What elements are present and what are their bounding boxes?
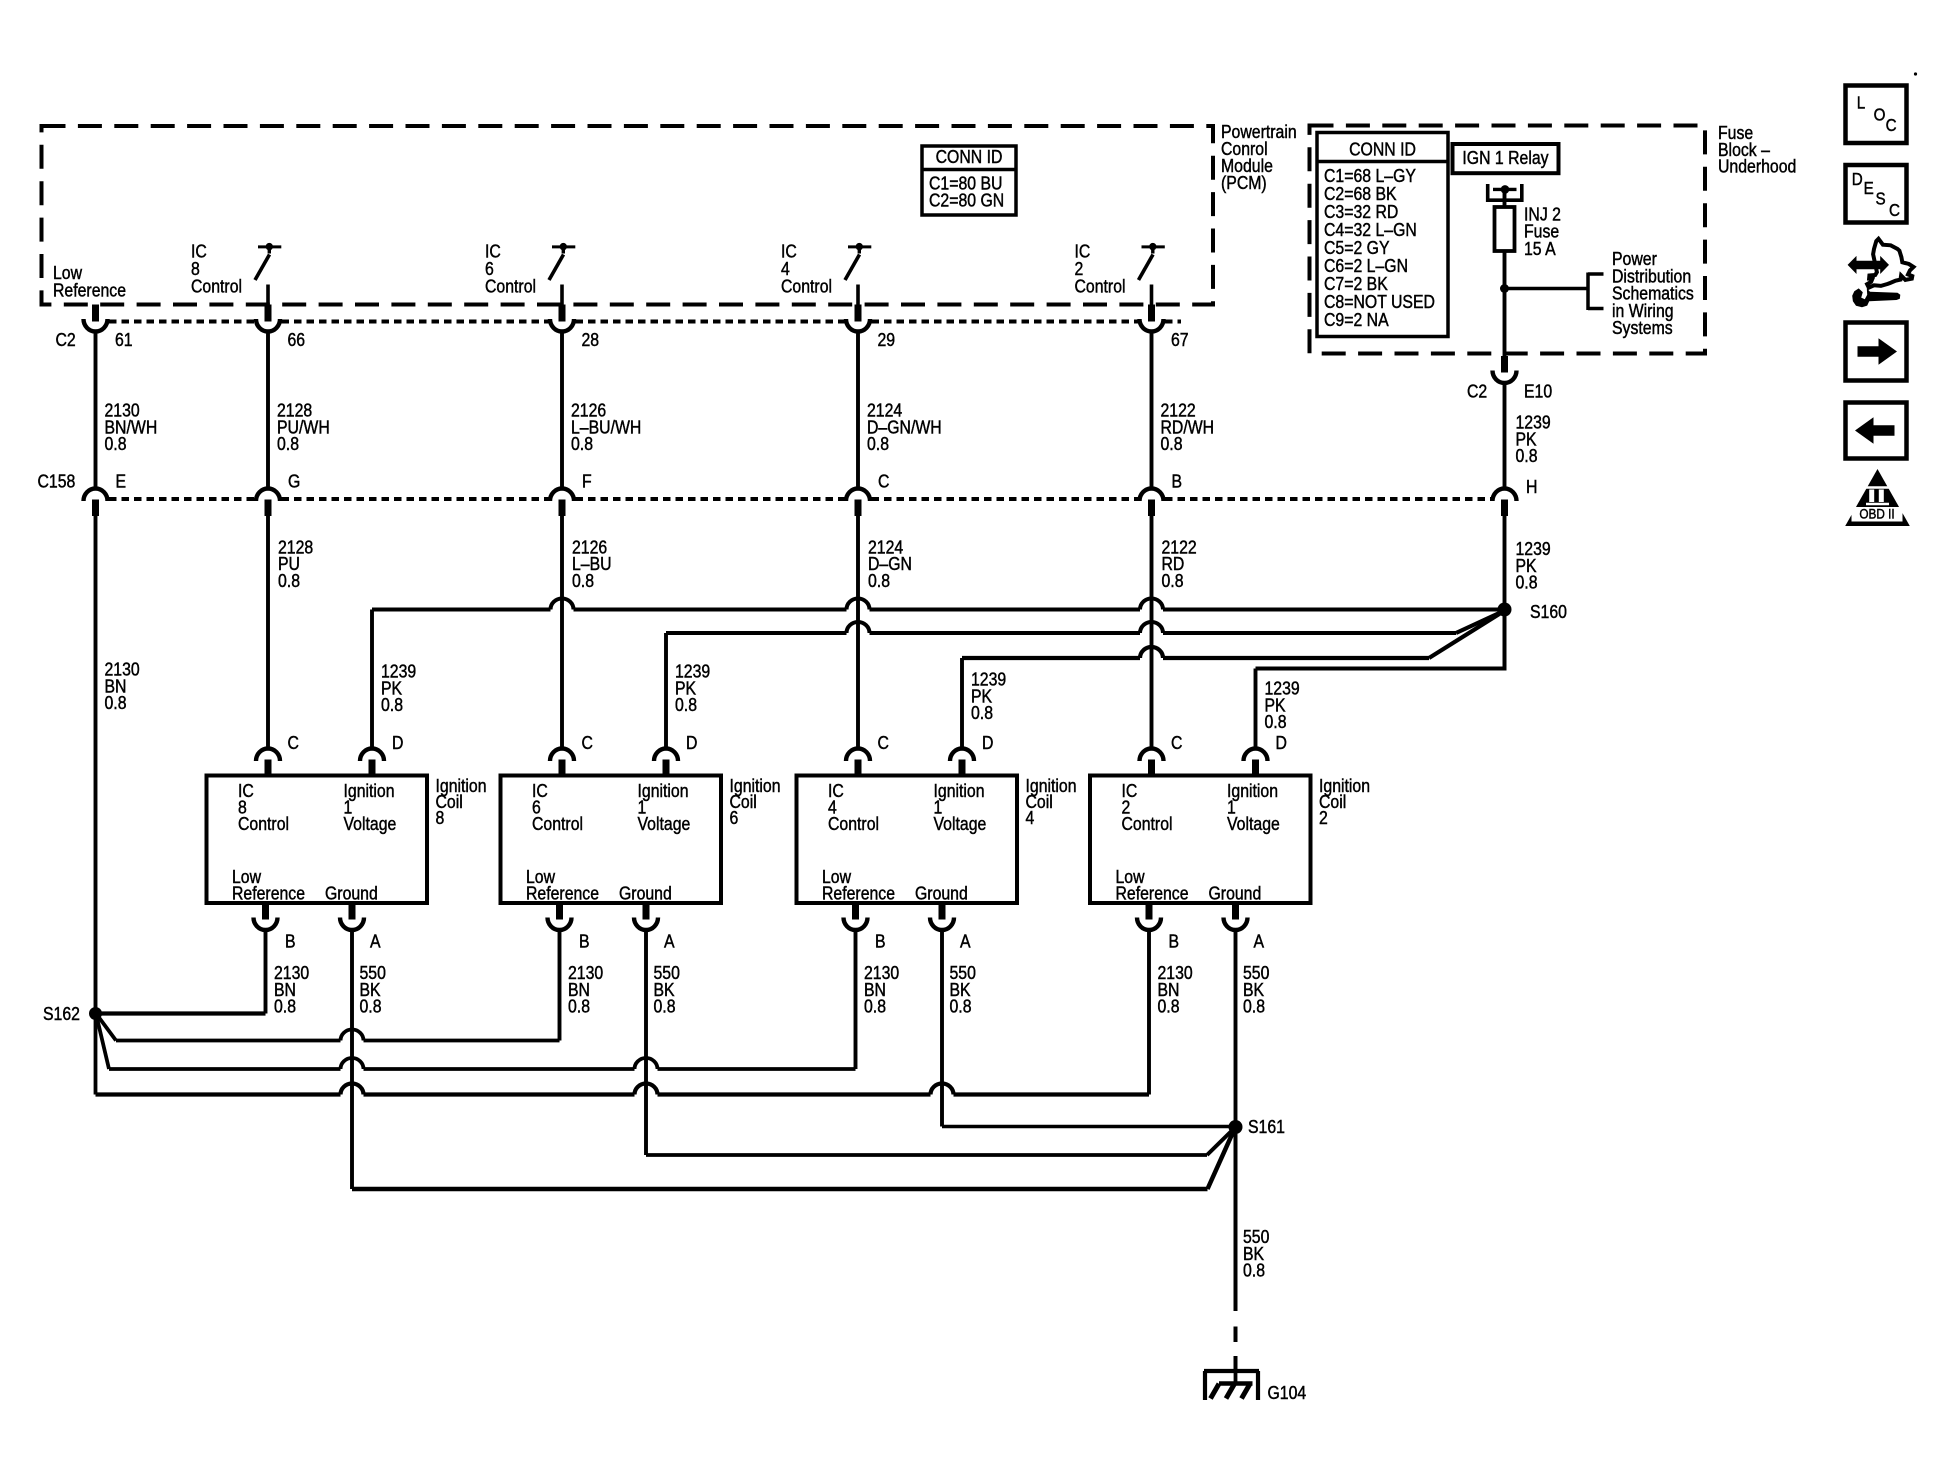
svg-text:E10: E10	[1524, 381, 1552, 401]
svg-text:61: 61	[115, 330, 133, 350]
svg-text:D: D	[1852, 170, 1863, 189]
svg-text:OBD II: OBD II	[1859, 507, 1894, 522]
svg-text:0.8: 0.8	[654, 997, 676, 1017]
svg-text:0.8: 0.8	[950, 997, 972, 1017]
svg-text:0.8: 0.8	[971, 703, 993, 723]
svg-text:B: B	[285, 931, 296, 951]
svg-text:C2: C2	[56, 330, 76, 350]
svg-text:S161: S161	[1248, 1117, 1285, 1137]
svg-text:G104: G104	[1268, 1383, 1307, 1403]
svg-text:Reference: Reference	[822, 883, 895, 903]
svg-text:C: C	[878, 471, 889, 491]
svg-text:0.8: 0.8	[868, 571, 890, 591]
svg-text:B: B	[1169, 931, 1180, 951]
svg-text:Control: Control	[1122, 814, 1173, 834]
svg-text:D: D	[686, 733, 697, 753]
svg-text:0.8: 0.8	[1516, 573, 1538, 593]
svg-text:C: C	[878, 733, 889, 753]
svg-text:0.8: 0.8	[1265, 712, 1287, 732]
svg-text:0.8: 0.8	[1158, 997, 1180, 1017]
svg-text:0.8: 0.8	[105, 693, 127, 713]
svg-text:B: B	[875, 931, 886, 951]
svg-text:Control: Control	[532, 814, 583, 834]
svg-text:(PCM): (PCM)	[1221, 173, 1267, 193]
svg-text:0.8: 0.8	[864, 997, 886, 1017]
svg-text:Control: Control	[191, 276, 242, 296]
svg-text:A: A	[960, 931, 971, 951]
svg-text:IGN 1 Relay: IGN 1 Relay	[1462, 148, 1549, 168]
svg-text:G: G	[288, 471, 300, 491]
svg-text:Voltage: Voltage	[638, 814, 691, 834]
svg-text:C: C	[1889, 201, 1900, 220]
svg-text:0.8: 0.8	[1161, 434, 1183, 454]
svg-text:A: A	[1254, 931, 1265, 951]
svg-text:67: 67	[1171, 330, 1189, 350]
svg-text:L: L	[1857, 93, 1865, 112]
svg-text:Ground: Ground	[915, 883, 968, 903]
svg-text:0.8: 0.8	[1516, 446, 1538, 466]
svg-text:E: E	[116, 471, 127, 491]
svg-text:15 A: 15 A	[1524, 239, 1556, 259]
svg-text:0.8: 0.8	[675, 695, 697, 715]
svg-text:C: C	[1886, 116, 1897, 135]
svg-text:0.8: 0.8	[360, 997, 382, 1017]
svg-text:0.8: 0.8	[278, 571, 300, 591]
svg-text:E: E	[1864, 179, 1874, 198]
svg-text:D: D	[982, 733, 993, 753]
svg-text:Ground: Ground	[325, 883, 378, 903]
svg-text:A: A	[664, 931, 675, 951]
svg-text:B: B	[579, 931, 590, 951]
svg-text:Control: Control	[238, 814, 289, 834]
svg-text:28: 28	[582, 330, 600, 350]
svg-text:Control: Control	[1075, 276, 1126, 296]
svg-text:C9=2 NA: C9=2 NA	[1324, 310, 1389, 330]
svg-text:29: 29	[878, 330, 896, 350]
svg-text:0.8: 0.8	[572, 571, 594, 591]
svg-text:O: O	[1874, 105, 1886, 124]
svg-text:0.8: 0.8	[277, 434, 299, 454]
svg-text:F: F	[582, 471, 592, 491]
svg-text:0.8: 0.8	[105, 434, 127, 454]
svg-text:Ground: Ground	[1209, 883, 1262, 903]
svg-text:Underhood: Underhood	[1718, 157, 1796, 177]
svg-text:0.8: 0.8	[571, 434, 593, 454]
svg-text:B: B	[1172, 471, 1183, 491]
svg-text:Reference: Reference	[232, 883, 305, 903]
svg-text:S: S	[1876, 189, 1886, 208]
svg-text:D: D	[392, 733, 403, 753]
svg-text:Control: Control	[781, 276, 832, 296]
svg-text:CONN ID: CONN ID	[1349, 139, 1416, 159]
svg-text:D: D	[1276, 733, 1287, 753]
svg-text:0.8: 0.8	[1162, 571, 1184, 591]
svg-text:C2: C2	[1467, 381, 1487, 401]
svg-text:C: C	[582, 733, 593, 753]
svg-text:6: 6	[730, 808, 739, 828]
svg-text:0.8: 0.8	[1243, 1261, 1265, 1281]
svg-text:0.8: 0.8	[867, 434, 889, 454]
svg-text:S162: S162	[43, 1004, 80, 1024]
svg-text:Reference: Reference	[526, 883, 599, 903]
svg-text:C: C	[288, 733, 299, 753]
svg-text:0.8: 0.8	[274, 997, 296, 1017]
svg-text:S160: S160	[1530, 602, 1567, 622]
svg-text:C158: C158	[38, 471, 76, 491]
svg-text:0.8: 0.8	[1243, 997, 1265, 1017]
svg-text:Control: Control	[828, 814, 879, 834]
svg-text:Voltage: Voltage	[1227, 814, 1280, 834]
svg-text:Systems: Systems	[1612, 318, 1673, 338]
svg-text:8: 8	[436, 808, 445, 828]
svg-text:4: 4	[1026, 808, 1035, 828]
svg-text:C2=80 GN: C2=80 GN	[929, 190, 1004, 210]
svg-text:Ground: Ground	[619, 883, 672, 903]
svg-text:66: 66	[288, 330, 306, 350]
svg-text:H: H	[1526, 477, 1537, 497]
svg-text:A: A	[370, 931, 381, 951]
svg-text:CONN ID: CONN ID	[936, 147, 1003, 167]
svg-text:Reference: Reference	[53, 280, 126, 300]
svg-text:0.8: 0.8	[568, 997, 590, 1017]
svg-text:Voltage: Voltage	[934, 814, 987, 834]
svg-text:0.8: 0.8	[381, 695, 403, 715]
svg-text:2: 2	[1319, 808, 1328, 828]
svg-text:C: C	[1171, 733, 1182, 753]
svg-text:Voltage: Voltage	[344, 814, 397, 834]
svg-text:Reference: Reference	[1116, 883, 1189, 903]
svg-text:Control: Control	[485, 276, 536, 296]
